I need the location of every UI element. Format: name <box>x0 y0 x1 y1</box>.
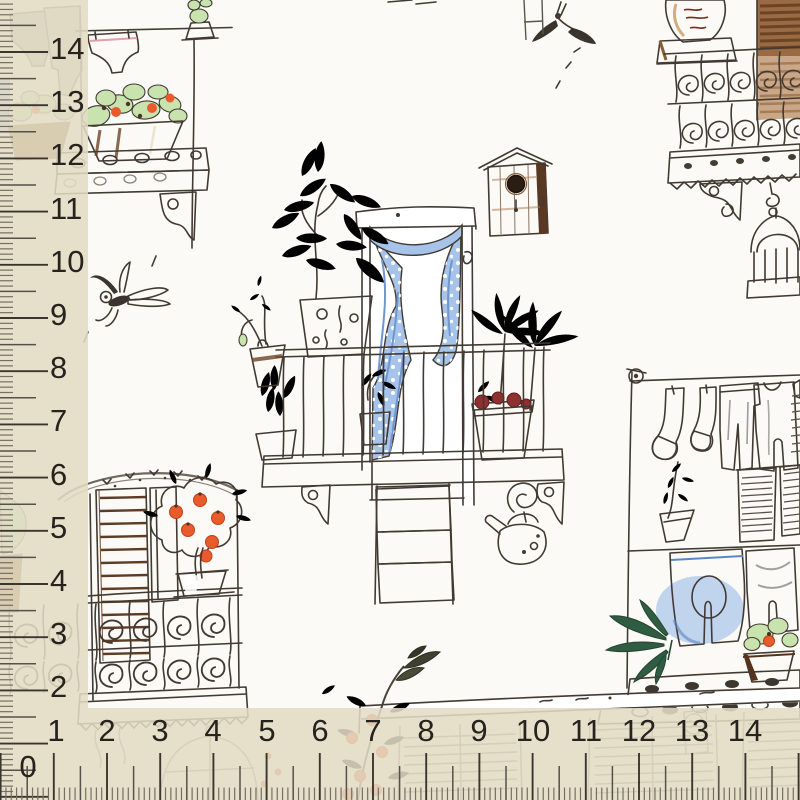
ruler-left-number: 12 <box>50 137 88 173</box>
fabric-illustration <box>0 0 800 800</box>
ruler-left-number: 4 <box>50 563 88 599</box>
birdhouse-hole <box>508 176 525 193</box>
ruler-bottom-number: 9 <box>458 713 500 749</box>
ruler-corner-zero: 0 <box>13 749 43 785</box>
ruler-bottom-number: 5 <box>246 713 288 749</box>
ruler-left-number: 10 <box>50 244 88 280</box>
ruler-corner-one: 1 <box>44 713 68 749</box>
ruler-left-number: 8 <box>50 350 88 386</box>
ruler-left-number: 3 <box>50 616 88 652</box>
ruler-left-number: 13 <box>50 84 88 120</box>
ruler-bottom-number: 11 <box>565 713 607 749</box>
ruler-bottom-number: 3 <box>139 713 181 749</box>
fabric-ruler-photo: 14 13 12 11 10 9 8 7 6 5 4 3 2 0 1 2 3 4… <box>0 0 800 800</box>
ruler-left-number: 5 <box>50 510 88 546</box>
ruler-bottom-number: 2 <box>86 713 128 749</box>
ruler-bottom-number: 14 <box>724 713 766 749</box>
ruler-bottom-number: 13 <box>671 713 713 749</box>
ruler-left-number: 2 <box>50 669 88 705</box>
ruler-bottom-number: 6 <box>299 713 341 749</box>
ruler-left-number: 14 <box>50 31 88 67</box>
ruler-bottom-number: 12 <box>618 713 660 749</box>
ruler-bottom-number: 10 <box>512 713 554 749</box>
ruler-left-number: 11 <box>50 191 88 227</box>
ruler-bottom-number: 7 <box>352 713 394 749</box>
ruler-bottom-number: 8 <box>405 713 447 749</box>
ruler-left-number: 9 <box>50 297 88 333</box>
ruler-bottom-number: 4 <box>192 713 234 749</box>
ruler-left-number: 7 <box>50 403 88 439</box>
ruler-left-number: 6 <box>50 457 88 493</box>
